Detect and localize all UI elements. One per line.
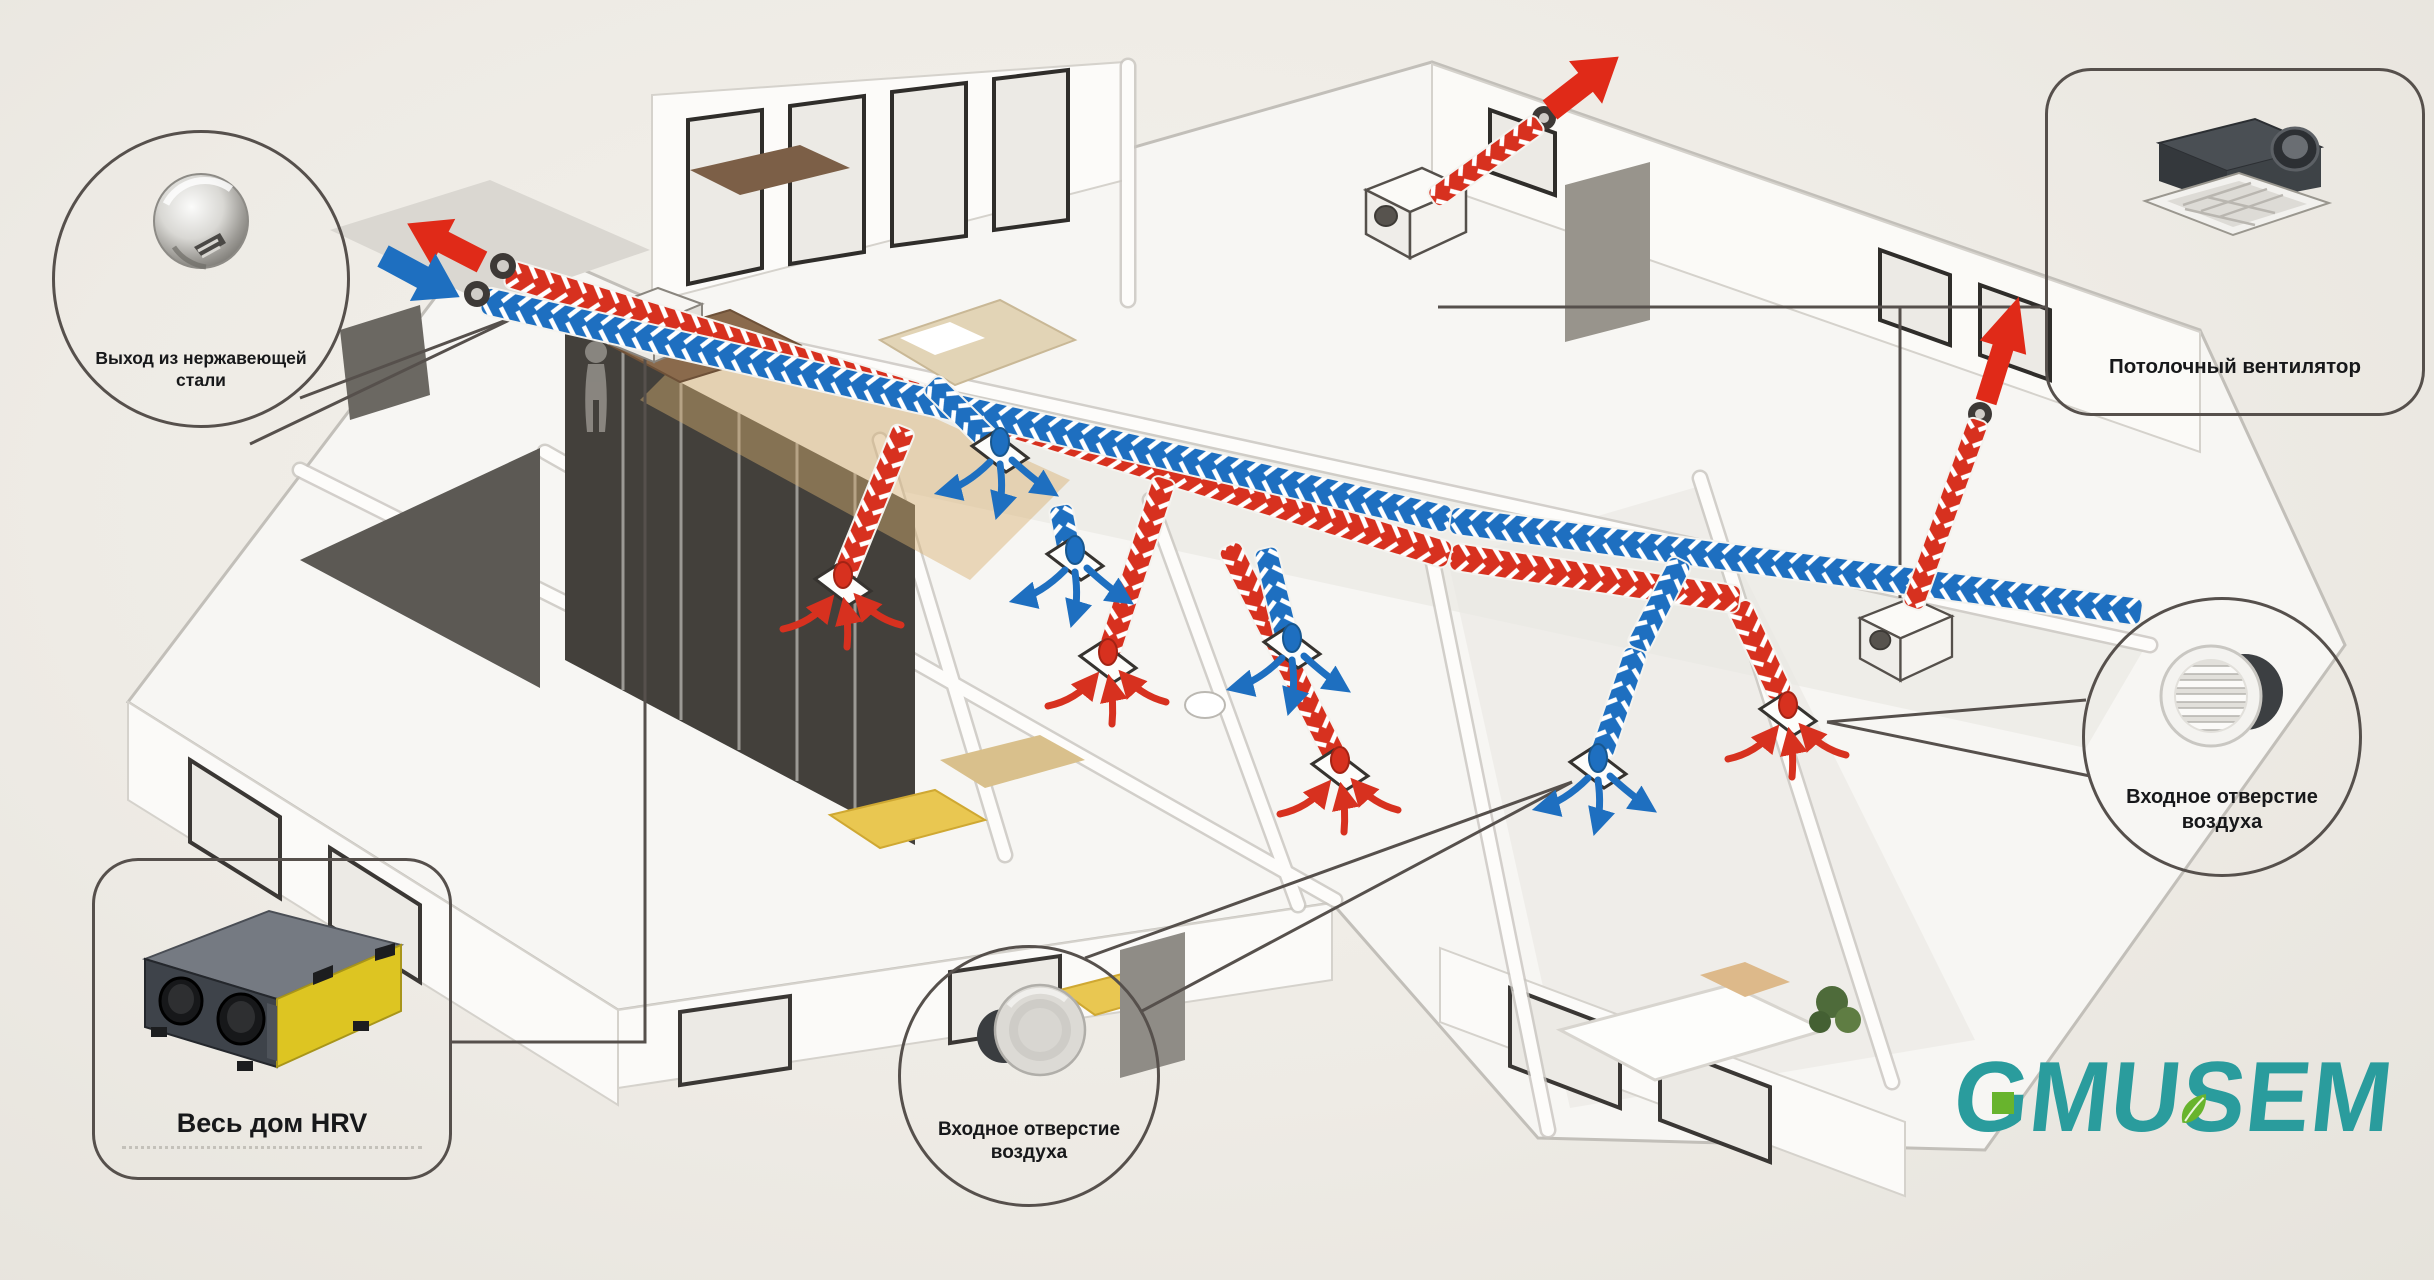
callout-label: Входное отверстие воздуха xyxy=(2104,785,2340,834)
hrv-ventilation-diagram: Выход из нержавеющей стали Потолочный ве… xyxy=(0,0,2434,1280)
callout-hrv-unit: Весь дом HRV xyxy=(92,858,452,1180)
duct-wall-cap xyxy=(490,253,516,279)
duct-wall-cap xyxy=(464,281,490,307)
logo-green-square xyxy=(1992,1092,2014,1114)
callout-label: Весь дом HRV xyxy=(112,1107,432,1149)
callout-ceiling-fan: Потолочный вентилятор xyxy=(2045,68,2425,416)
window-frame xyxy=(688,110,762,284)
plant xyxy=(1809,1011,1831,1033)
ceiling-fan-unit-icon xyxy=(2115,109,2355,284)
callout-air-inlet-floor: Входное отверстие воздуха xyxy=(898,945,1160,1207)
callout-label: Выход из нержавеющей стали xyxy=(76,348,326,391)
hrv-label-text: Весь дом HRV xyxy=(177,1108,368,1138)
stainless-steel-vent-cap-icon xyxy=(136,159,266,294)
disc-air-diffuser-icon xyxy=(954,974,1104,1099)
plant xyxy=(1835,1007,1861,1033)
callout-label: Потолочный вентилятор xyxy=(2070,354,2400,379)
toilet xyxy=(1185,692,1225,718)
window-frame xyxy=(892,83,966,246)
callout-air-inlet-right: Входное отверстие воздуха xyxy=(2082,597,2362,877)
appliance xyxy=(1565,162,1650,342)
callout-label: Входное отверстие воздуха xyxy=(914,1118,1144,1164)
leaf-icon xyxy=(2176,1092,2212,1133)
callout-stainless-outlet: Выход из нержавеющей стали xyxy=(52,130,350,428)
dotted-underline xyxy=(122,1146,422,1149)
window-frame xyxy=(994,70,1068,230)
window-frame xyxy=(680,996,790,1085)
house-floor-plan xyxy=(128,62,2345,1196)
round-louver-vent-icon xyxy=(2137,634,2307,769)
brand-logo: GMUSEM xyxy=(1948,1040,2434,1170)
hrv-unit-box-icon xyxy=(117,881,427,1096)
